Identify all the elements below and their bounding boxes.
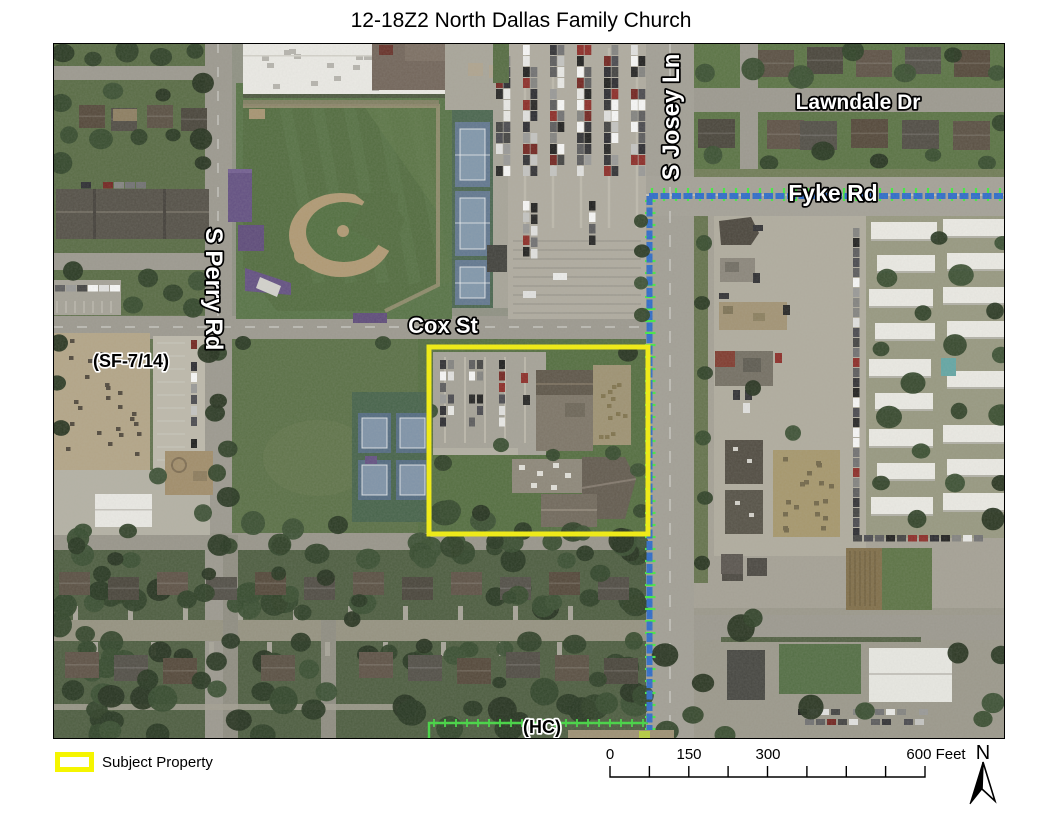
svg-text:N: N [976, 742, 990, 764]
svg-text:150: 150 [676, 746, 701, 763]
svg-text:600 Feet: 600 Feet [906, 746, 966, 763]
svg-text:300: 300 [755, 746, 780, 763]
svg-text:0: 0 [606, 746, 614, 763]
